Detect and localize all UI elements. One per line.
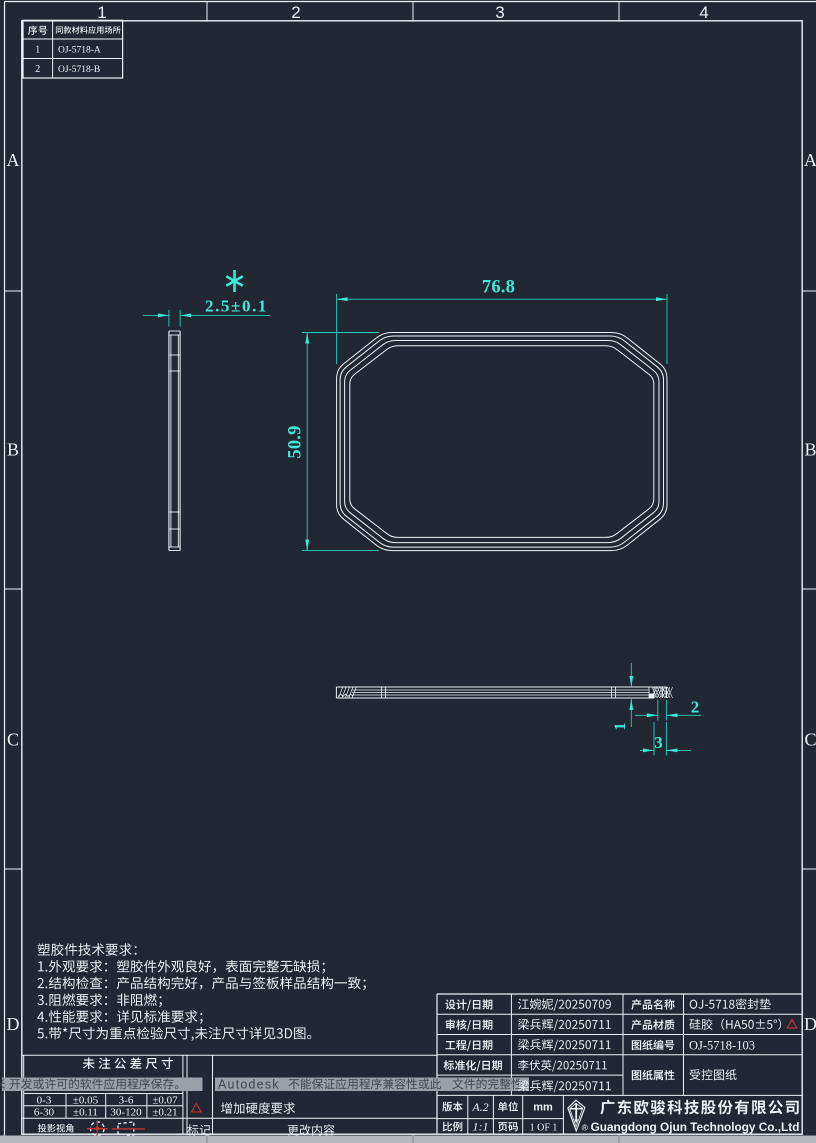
- svg-text:0-3: 0-3: [37, 1095, 52, 1107]
- svg-text:C: C: [7, 730, 19, 750]
- svg-text:1 OF 1: 1 OF 1: [530, 1123, 558, 1134]
- svg-text:3: 3: [654, 733, 663, 752]
- svg-text:D: D: [804, 1014, 816, 1034]
- svg-text:±0.05: ±0.05: [73, 1095, 99, 1107]
- svg-text:6-30: 6-30: [34, 1107, 55, 1119]
- svg-text:D: D: [7, 1014, 20, 1034]
- svg-text:A: A: [7, 150, 20, 170]
- svg-text:3-6: 3-6: [119, 1095, 134, 1107]
- svg-text:76.8: 76.8: [482, 278, 515, 298]
- svg-text:1: 1: [97, 3, 106, 22]
- svg-text:50.9: 50.9: [286, 425, 306, 458]
- svg-text:±0.11: ±0.11: [73, 1107, 98, 1119]
- svg-text:3: 3: [495, 3, 504, 22]
- svg-text:2: 2: [35, 64, 40, 75]
- svg-text:Autodesk: Autodesk: [218, 1077, 280, 1091]
- svg-text:1:1: 1:1: [473, 1120, 489, 1134]
- svg-text:2.5±0.1: 2.5±0.1: [205, 297, 268, 316]
- svg-text:C: C: [804, 730, 816, 750]
- svg-text:OJ-5718-A: OJ-5718-A: [58, 46, 101, 56]
- svg-text:1: 1: [612, 723, 629, 731]
- svg-text:2: 2: [691, 698, 700, 717]
- svg-text:®: ®: [582, 1123, 589, 1133]
- svg-text:OJ-5718-B: OJ-5718-B: [58, 65, 100, 75]
- svg-text:B: B: [7, 440, 19, 460]
- svg-text:±0.07: ±0.07: [152, 1095, 178, 1107]
- svg-text:B: B: [804, 440, 816, 460]
- svg-text:30-120: 30-120: [110, 1107, 142, 1119]
- svg-text:Guangdong Ojun Technology Co.,: Guangdong Ojun Technology Co.,Ltd: [591, 1120, 800, 1134]
- svg-text:mm: mm: [533, 1102, 553, 1114]
- svg-text:2: 2: [291, 3, 300, 22]
- svg-text:4: 4: [699, 3, 708, 22]
- svg-text:A: A: [804, 150, 816, 170]
- svg-text:1: 1: [35, 45, 40, 56]
- svg-text:±0.21: ±0.21: [152, 1107, 177, 1119]
- svg-text:OJ-5718-103: OJ-5718-103: [689, 1039, 755, 1053]
- svg-text:A.2: A.2: [471, 1100, 488, 1114]
